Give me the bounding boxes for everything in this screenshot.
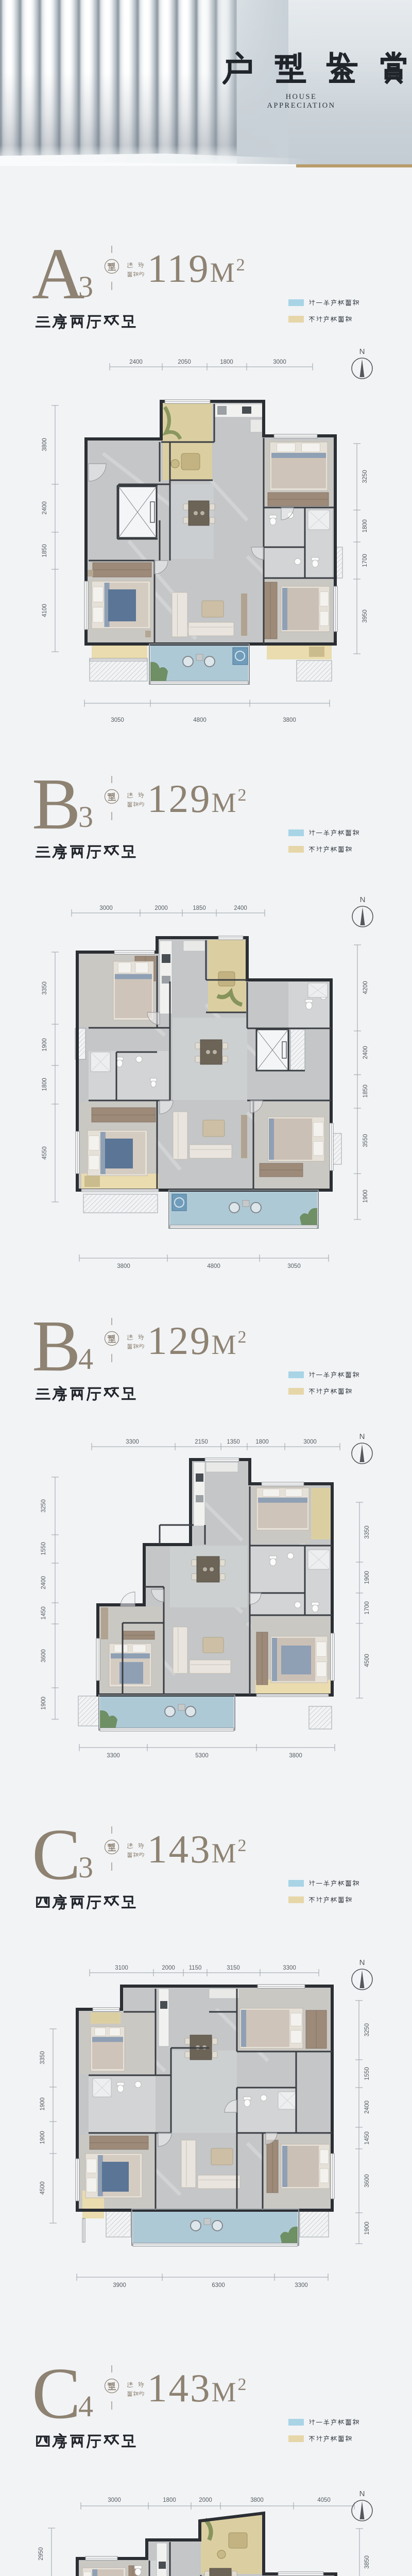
svg-text:3000: 3000 — [273, 359, 286, 365]
svg-text:N: N — [359, 2489, 365, 2498]
svg-text:1800: 1800 — [362, 519, 368, 533]
svg-text:1800: 1800 — [163, 2497, 176, 2503]
svg-text:1800: 1800 — [255, 1439, 269, 1445]
svg-text:3800: 3800 — [117, 1263, 130, 1269]
svg-text:3000: 3000 — [303, 1439, 317, 1445]
svg-text:3900: 3900 — [113, 2282, 126, 2289]
svg-text:1900: 1900 — [41, 1697, 47, 1710]
svg-text:4550: 4550 — [42, 1146, 48, 1160]
svg-text:4200: 4200 — [363, 981, 369, 994]
svg-text:1900: 1900 — [364, 1571, 370, 1584]
svg-text:1550: 1550 — [41, 1542, 47, 1555]
svg-text:2050: 2050 — [178, 359, 191, 365]
svg-text:2400: 2400 — [42, 501, 48, 515]
svg-text:4800: 4800 — [193, 717, 207, 723]
svg-text:3600: 3600 — [41, 1649, 47, 1663]
svg-text:1350: 1350 — [227, 1439, 240, 1445]
svg-text:3800: 3800 — [283, 717, 296, 723]
svg-text:4800: 4800 — [207, 1263, 220, 1269]
svg-text:2400: 2400 — [41, 1576, 47, 1589]
svg-text:2400: 2400 — [364, 2100, 370, 2114]
svg-text:1150: 1150 — [189, 1965, 202, 1971]
svg-text:1700: 1700 — [364, 1601, 370, 1615]
svg-text:2000: 2000 — [162, 1965, 175, 1971]
svg-text:3800: 3800 — [42, 438, 48, 451]
svg-text:1850: 1850 — [363, 1084, 369, 1098]
svg-text:N: N — [359, 1432, 365, 1441]
svg-text:1900: 1900 — [363, 1190, 369, 1203]
svg-text:3300: 3300 — [107, 1753, 120, 1759]
svg-text:3350: 3350 — [364, 1526, 370, 1539]
svg-text:1900: 1900 — [364, 2222, 370, 2235]
svg-text:3250: 3250 — [364, 2023, 370, 2037]
svg-text:3800: 3800 — [250, 2497, 264, 2503]
svg-text:1450: 1450 — [364, 2131, 370, 2145]
svg-text:4100: 4100 — [42, 604, 48, 617]
svg-text:3000: 3000 — [99, 905, 113, 911]
svg-text:1900: 1900 — [40, 2097, 46, 2111]
svg-text:3250: 3250 — [41, 1499, 47, 1513]
svg-text:1800: 1800 — [220, 359, 233, 365]
svg-text:1900: 1900 — [42, 1038, 48, 1052]
svg-text:2400: 2400 — [363, 1046, 369, 1059]
svg-text:N: N — [360, 895, 366, 904]
svg-text:3350: 3350 — [42, 981, 48, 995]
svg-text:3250: 3250 — [362, 470, 368, 483]
svg-text:3950: 3950 — [362, 609, 368, 623]
svg-text:3800: 3800 — [289, 1753, 302, 1759]
svg-text:2400: 2400 — [234, 905, 247, 911]
svg-text:1850: 1850 — [42, 544, 48, 557]
svg-text:2950: 2950 — [38, 2547, 44, 2561]
svg-text:3300: 3300 — [295, 2282, 308, 2289]
svg-text:3600: 3600 — [364, 2174, 370, 2188]
svg-text:3300: 3300 — [283, 1965, 296, 1971]
svg-text:3350: 3350 — [40, 2051, 46, 2064]
svg-text:1850: 1850 — [193, 905, 206, 911]
svg-text:1700: 1700 — [362, 554, 368, 567]
svg-text:3000: 3000 — [108, 2497, 121, 2503]
svg-text:1900: 1900 — [40, 2131, 46, 2144]
svg-text:3150: 3150 — [227, 1965, 240, 1971]
svg-text:2150: 2150 — [195, 1439, 208, 1445]
svg-text:3100: 3100 — [115, 1965, 128, 1971]
svg-text:4500: 4500 — [364, 1654, 370, 1667]
svg-text:3550: 3550 — [363, 1134, 369, 1147]
svg-text:4050: 4050 — [317, 2497, 331, 2503]
svg-text:N: N — [359, 1958, 365, 1967]
svg-text:5300: 5300 — [195, 1753, 209, 1759]
svg-text:3050: 3050 — [287, 1263, 301, 1269]
svg-text:3050: 3050 — [111, 717, 124, 723]
svg-text:4500: 4500 — [40, 2181, 46, 2195]
svg-text:2400: 2400 — [129, 359, 143, 365]
svg-text:1550: 1550 — [364, 2067, 370, 2080]
svg-text:6300: 6300 — [212, 2282, 225, 2289]
svg-text:2000: 2000 — [154, 905, 168, 911]
svg-text:2000: 2000 — [199, 2497, 212, 2503]
svg-text:N: N — [359, 347, 365, 356]
svg-text:1800: 1800 — [42, 1078, 48, 1091]
svg-text:3300: 3300 — [126, 1439, 139, 1445]
svg-text:3850: 3850 — [364, 2555, 370, 2569]
svg-text:1450: 1450 — [41, 1606, 47, 1620]
